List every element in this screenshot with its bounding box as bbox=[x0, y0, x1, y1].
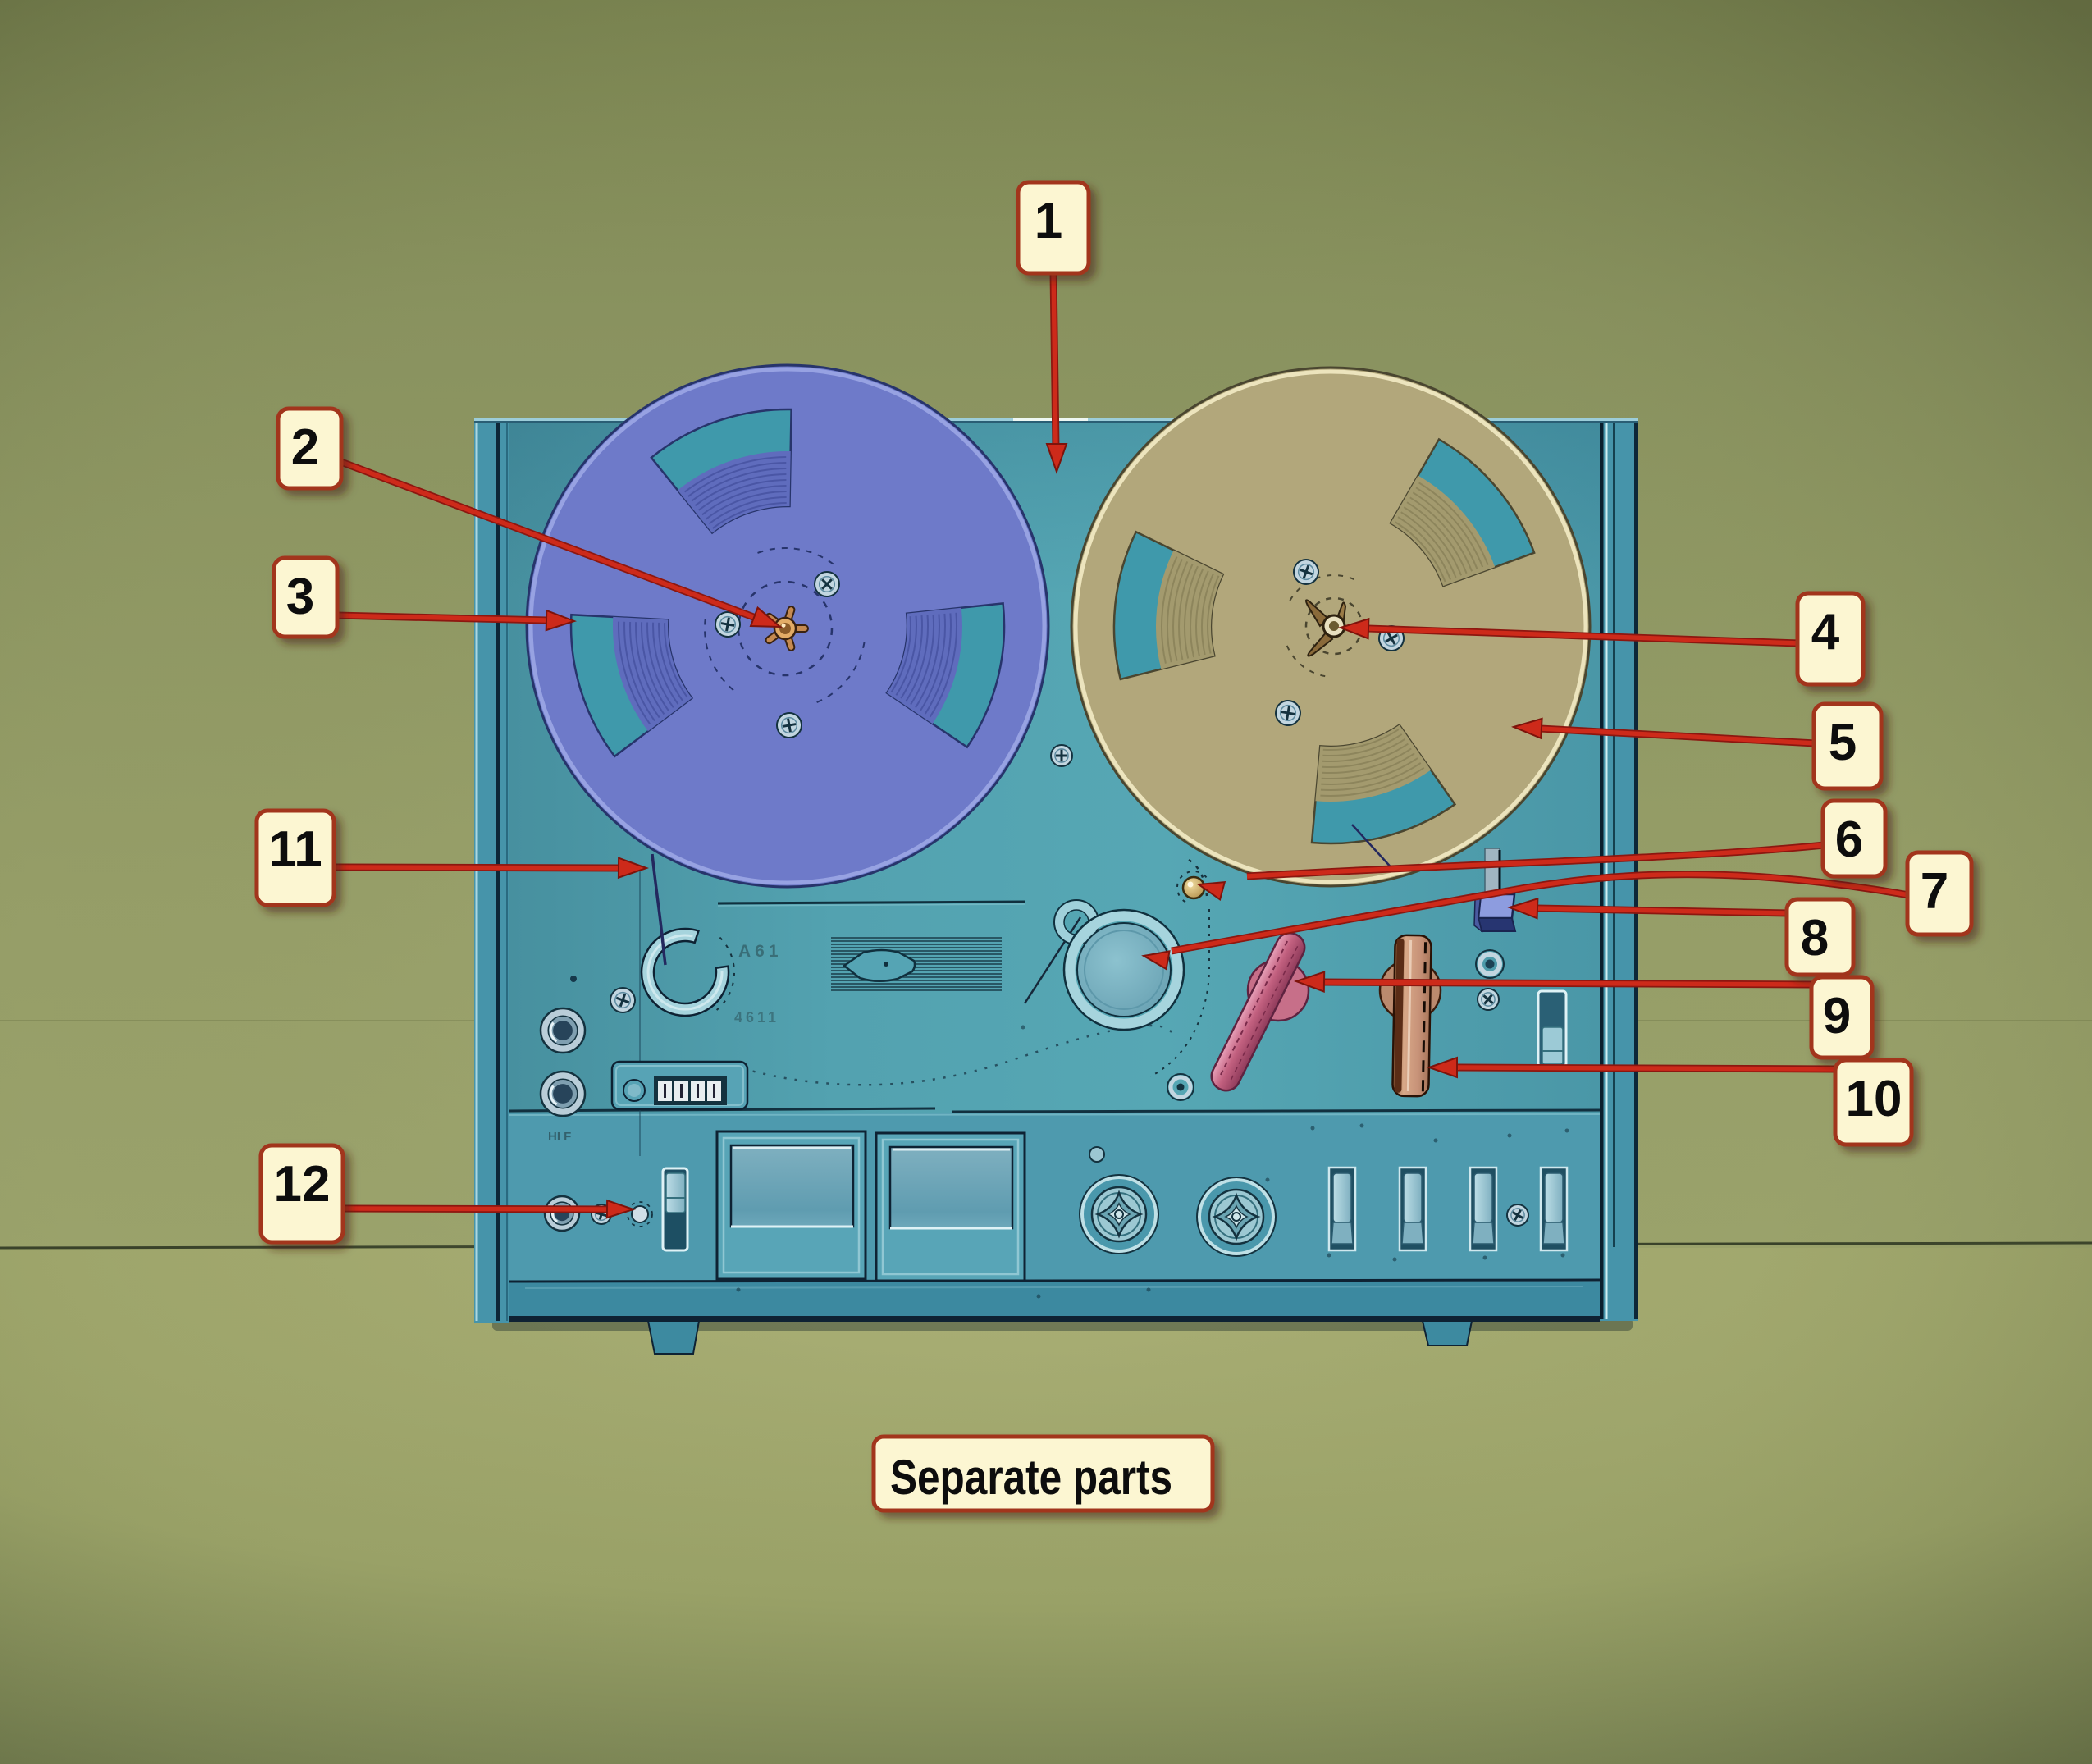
svg-text:1: 1 bbox=[1035, 193, 1062, 249]
svg-text:Separate parts: Separate parts bbox=[890, 1450, 1172, 1505]
svg-text:12: 12 bbox=[274, 1156, 331, 1213]
svg-text:11: 11 bbox=[268, 821, 322, 878]
svg-text:6: 6 bbox=[1835, 811, 1863, 868]
svg-text:7: 7 bbox=[1921, 863, 1948, 920]
svg-text:4611: 4611 bbox=[734, 1009, 779, 1026]
svg-text:9: 9 bbox=[1823, 988, 1851, 1044]
svg-text:4: 4 bbox=[1811, 604, 1840, 660]
svg-text:HI F: HI F bbox=[548, 1130, 571, 1144]
svg-text:2: 2 bbox=[291, 419, 319, 476]
svg-text:A61: A61 bbox=[738, 942, 783, 961]
svg-text:3: 3 bbox=[286, 569, 314, 625]
svg-text:10: 10 bbox=[1846, 1071, 1902, 1127]
svg-text:8: 8 bbox=[1801, 910, 1829, 967]
svg-text:5: 5 bbox=[1829, 715, 1857, 771]
